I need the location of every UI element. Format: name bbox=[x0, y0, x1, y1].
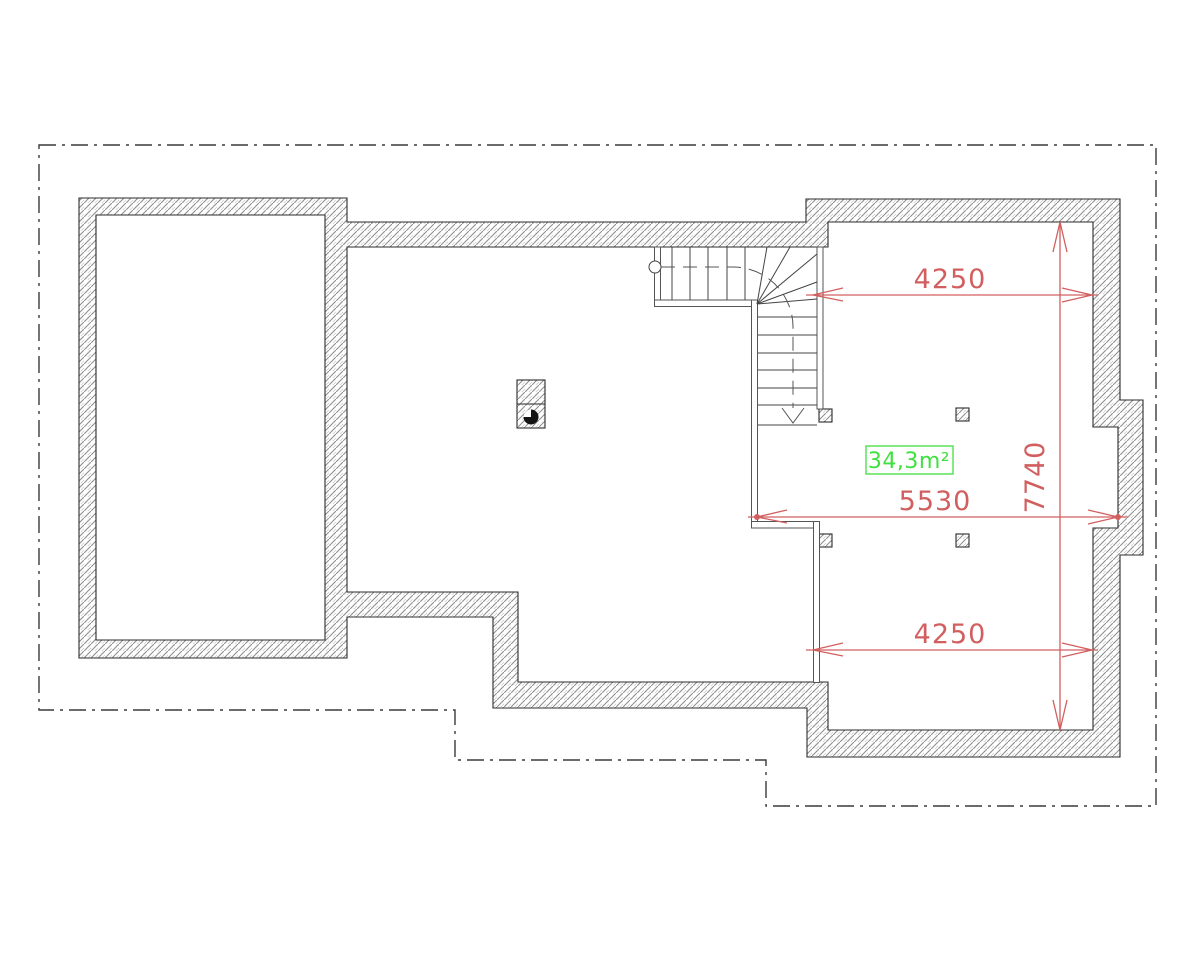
floor-plan-drawing: 4250 7740 5530 4250 34,3m² bbox=[0, 0, 1200, 960]
stair-direction-arrow-icon bbox=[782, 408, 804, 423]
wall-left-room-bottom bbox=[79, 640, 347, 658]
stair-left-wall bbox=[655, 247, 661, 306]
stair-right-wall bbox=[817, 247, 823, 409]
dimension-right-height-line bbox=[1053, 222, 1067, 730]
post-bottom-left bbox=[819, 534, 832, 547]
stair-lower-treads bbox=[758, 317, 818, 425]
dimension-right-height: 7740 bbox=[1020, 441, 1051, 514]
stair-newel-icon bbox=[649, 261, 661, 273]
wall-bottom-right-left bbox=[807, 682, 828, 757]
dimension-plan-width: 5530 bbox=[899, 486, 972, 517]
stair-bottom-wall bbox=[655, 300, 758, 307]
wall-right-block-top bbox=[806, 199, 1120, 222]
wall-left-room-top bbox=[79, 198, 347, 215]
main-room-inner-edge bbox=[347, 222, 1118, 730]
wall-middle-bottom-upper bbox=[330, 592, 518, 617]
post-bottom-right bbox=[956, 534, 969, 547]
left-room-inner-edge bbox=[96, 215, 325, 640]
floor-plan-page: 4250 7740 5530 4250 34,3m² bbox=[0, 0, 1200, 960]
dimension-top-width: 4250 bbox=[914, 264, 987, 295]
staircase bbox=[649, 247, 817, 425]
chimney bbox=[517, 380, 545, 428]
dimension-bottom-width: 4250 bbox=[914, 619, 987, 650]
wall-right-lower bbox=[1093, 555, 1120, 757]
wall-left-room-right bbox=[325, 198, 347, 658]
stair-upper-treads bbox=[672, 247, 745, 300]
wall-middle-bottom-lower bbox=[493, 682, 807, 708]
knee-wall-vertical-upper bbox=[752, 300, 758, 528]
knee-walls bbox=[655, 247, 824, 683]
knee-wall-vertical-lower bbox=[814, 522, 820, 683]
wall-middle-top bbox=[347, 222, 828, 247]
wall-bottom-right bbox=[807, 730, 1120, 757]
roof-posts bbox=[819, 408, 969, 547]
dimension-lines bbox=[748, 222, 1128, 730]
area-label: 34,3m² bbox=[866, 446, 953, 474]
post-top-left bbox=[819, 409, 832, 422]
post-top-right bbox=[956, 408, 969, 421]
area-label-text: 34,3m² bbox=[868, 449, 950, 474]
wall-left-room-left bbox=[79, 198, 96, 658]
wall-bay-bottom bbox=[1093, 528, 1143, 555]
wall-right-upper bbox=[1093, 199, 1120, 400]
